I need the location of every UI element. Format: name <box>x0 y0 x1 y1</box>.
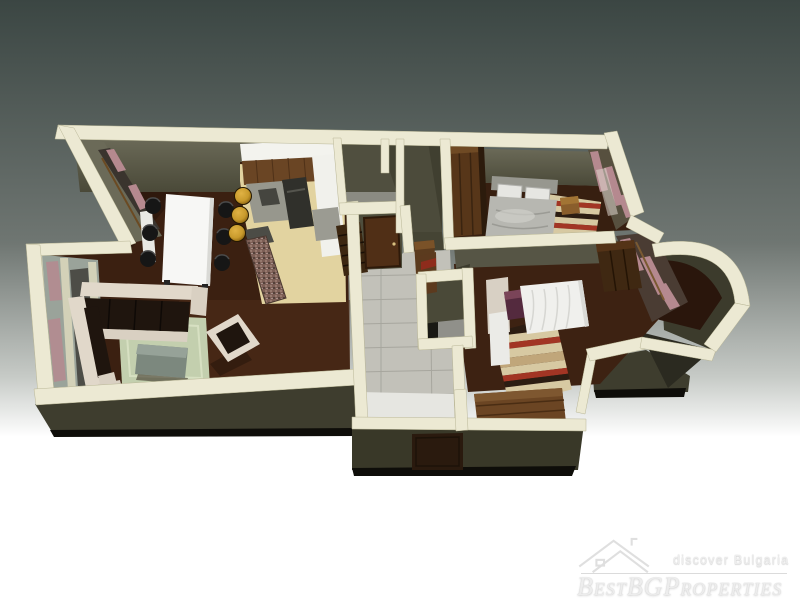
interior-door <box>364 216 400 268</box>
floor-plan-canvas <box>0 0 800 607</box>
wall-entry-south <box>352 417 586 431</box>
floor-plan-rendering: discover Bulgaria BestBGProperties <box>0 0 800 607</box>
white-cabinet <box>489 311 510 366</box>
dining-table <box>162 194 214 286</box>
single-bed <box>520 280 589 334</box>
kitchen-cabinets <box>242 157 320 185</box>
